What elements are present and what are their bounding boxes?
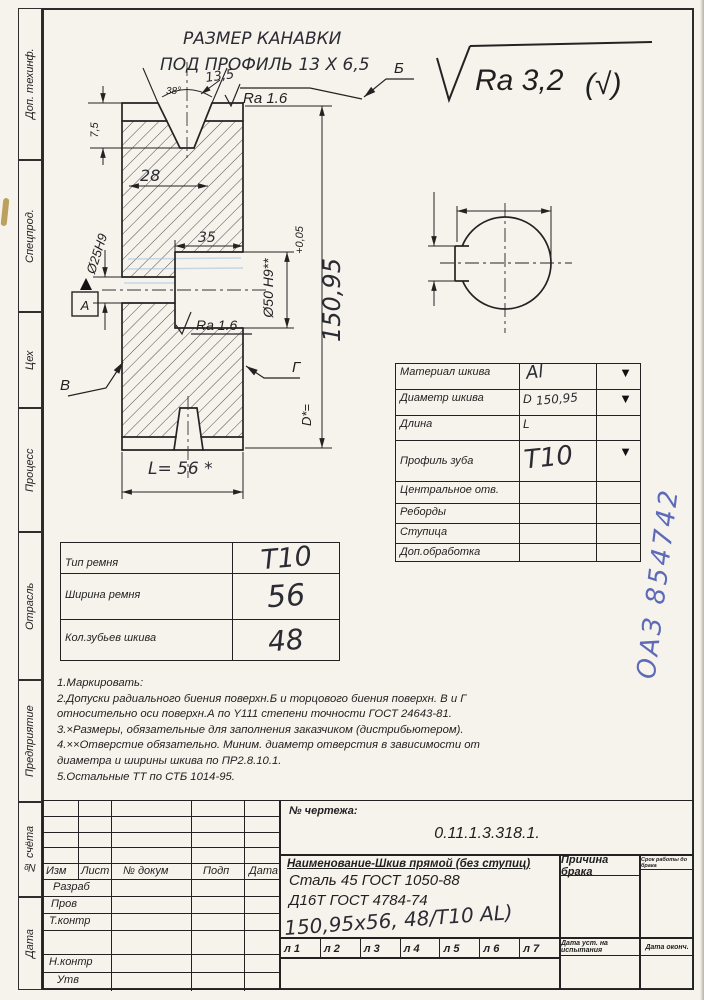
surface-v-label: В: [60, 377, 70, 394]
table-row: Доп.обработка: [396, 544, 640, 561]
revision-table: Изм Лист № докум Подп Дата Разраб Пров Т…: [42, 800, 280, 990]
pulley-section: [102, 62, 268, 478]
param-value: Т10: [523, 441, 575, 476]
table-row: Профиль зуба Т10 ▼: [396, 441, 640, 482]
param-label: Длина: [396, 416, 520, 440]
groove-note-line2: ПОД ПРОФИЛЬ 13 Х 6,5: [160, 55, 370, 75]
roughness-top: Ra 1.6: [243, 90, 288, 107]
belt-table: Тип ремня Т10 Ширина ремня 56 Кол.зубьев…: [60, 542, 340, 661]
param-label: Ступица: [396, 524, 520, 543]
sheet-cell: л 2: [321, 943, 340, 955]
sign-row-razrab: Разраб: [53, 881, 90, 893]
empty-cell: [280, 958, 560, 990]
margin-label-no-scheta: № счёта: [18, 802, 42, 897]
table-row: Ступица: [396, 524, 640, 544]
belt-label: Ширина ремня: [61, 574, 233, 619]
dropdown-arrow-icon: ▼: [619, 391, 632, 406]
sign-row-nkontr: Н.контр: [49, 956, 93, 968]
belt-value: Т10: [259, 540, 312, 575]
general-roughness: Ra 3,2: [475, 64, 564, 97]
test-date-cell: Дата уст. на испытания: [560, 938, 640, 990]
margin-label-data: Дата: [18, 897, 42, 990]
param-prefix: L: [523, 417, 530, 431]
sheet-cell: л 4: [401, 943, 420, 955]
belt-label: Кол.зубьев шкива: [61, 620, 233, 660]
surface-g-label: Г: [292, 359, 302, 376]
drawing-number-cell: № чертежа: 0.11.1.3.318.1.: [280, 800, 694, 855]
param-label: Диаметр шкива: [396, 390, 520, 415]
circle-view: [428, 192, 572, 333]
table-row: Длина L: [396, 416, 640, 441]
service-life-label: Срок работы до брака: [641, 857, 693, 869]
material-steel: Сталь 45 ГОСТ 1050-88: [289, 872, 460, 889]
param-label: Профиль зуба: [396, 441, 520, 481]
params-table: Материал шкива Al ▼ Диаметр шкива D150,9…: [395, 363, 641, 562]
rev-header-data: Дата: [249, 865, 278, 877]
dim-tolerance: +0,05: [294, 225, 306, 254]
surface-b-label: Б: [394, 60, 404, 77]
belt-label: Тип ремня: [61, 543, 233, 573]
dim-35: 35: [198, 230, 216, 246]
test-date-label: Дата уст. на испытания: [561, 940, 639, 954]
service-life-cell: Срок работы до брака: [640, 855, 694, 938]
rev-header-list: Лист: [81, 865, 109, 877]
param-label: Центральное отв.: [396, 482, 520, 503]
groove-note-line1: РАЗМЕР КАНАВКИ: [183, 29, 342, 49]
technical-notes: 1.Маркировать: 2.Допуски радиального бие…: [57, 676, 487, 785]
dim-outer-prefix: D*=: [299, 404, 314, 426]
dim-counterbore: Ø50 Н9**: [260, 258, 276, 319]
dim-outer-value: 150,95: [318, 258, 346, 342]
sheet-cell: л 7: [520, 943, 539, 955]
table-row: Реборды: [396, 504, 640, 524]
note-line: 3.×Размеры, обязательные для заполнения …: [57, 723, 487, 739]
param-value: 150,95: [535, 390, 578, 408]
end-date-label: Дата оконч.: [645, 944, 688, 951]
sign-row-tkontr: Т.контр: [49, 915, 90, 927]
note-line: 1.Маркировать:: [57, 676, 487, 692]
dropdown-arrow-icon: ▼: [619, 444, 632, 459]
param-value: Al: [525, 361, 544, 384]
param-label: Реборды: [396, 504, 520, 523]
drawing-number-label: № чертежа:: [289, 805, 358, 817]
table-row: Ширина ремня 56: [61, 574, 339, 620]
defect-cause-label: Причина брака: [561, 854, 639, 878]
param-label: Материал шкива: [396, 364, 520, 389]
part-name-cell: Наименование-Шкив прямой (без ступиц) Ст…: [280, 855, 560, 938]
note-line: 4.××Отверстие обязательно. Миним. диамет…: [57, 738, 487, 754]
belt-value: 48: [267, 622, 305, 658]
rev-header-dokum: № докум: [123, 865, 168, 877]
dim-length: L= 56 *: [148, 459, 213, 479]
dim-28: 28: [140, 166, 160, 185]
sheet-cell: л 5: [440, 943, 459, 955]
note-line: относительно оси поверхн.А по Y111 степе…: [57, 707, 487, 723]
part-name: Наименование-Шкив прямой (без ступиц): [287, 858, 530, 870]
sheet-cell: л 6: [480, 943, 499, 955]
note-line: диаметра и ширины шкива по ПР2.8.10.1.: [57, 754, 487, 770]
dim-bore: Ø25Н9: [83, 232, 110, 277]
table-row: Центральное отв.: [396, 482, 640, 504]
sheet-cell: л 3: [361, 943, 380, 955]
sign-row-utv: Утв: [57, 974, 79, 986]
dim-7-5: 7,5: [89, 121, 101, 137]
dim-angle: 38°: [166, 86, 181, 97]
general-roughness-alt: (√): [585, 68, 621, 101]
belt-value: 56: [266, 578, 307, 616]
sheet-row: л 1 л 2 л 3 л 4 л 5 л 6 л 7: [280, 938, 560, 958]
rev-header-podp: Подп: [203, 865, 229, 877]
param-prefix: D: [523, 392, 532, 406]
table-row: Кол.зубьев шкива 48: [61, 620, 339, 660]
rev-header-izm: Изм: [46, 865, 66, 877]
drawing-sheet: Доп. техинф. Спецпрод. Цех Процесс Отрас…: [0, 0, 704, 1000]
defect-cause-cell: Причина брака: [560, 855, 640, 938]
note-line: 5.Остальные ТТ по СТБ 1014-95.: [57, 770, 487, 786]
sign-row-prov: Пров: [51, 898, 77, 910]
dropdown-arrow-icon: ▼: [619, 365, 632, 380]
note-line: 2.Допуски радиального биения поверхн.Б и…: [57, 692, 487, 708]
sheet-cell: л 1: [281, 943, 300, 955]
table-row: Диаметр шкива D150,95 ▼: [396, 390, 640, 416]
end-date-cell: Дата оконч.: [640, 938, 694, 990]
param-label: Доп.обработка: [396, 544, 520, 561]
dim-13-5: 13,5: [204, 67, 235, 86]
table-row: Тип ремня Т10: [61, 543, 339, 574]
roughness-bore: Ra 1.6: [196, 317, 237, 333]
drawing-number: 0.11.1.3.318.1.: [281, 825, 693, 843]
table-row: Материал шкива Al ▼: [396, 364, 640, 390]
datum-label: А: [80, 298, 90, 313]
